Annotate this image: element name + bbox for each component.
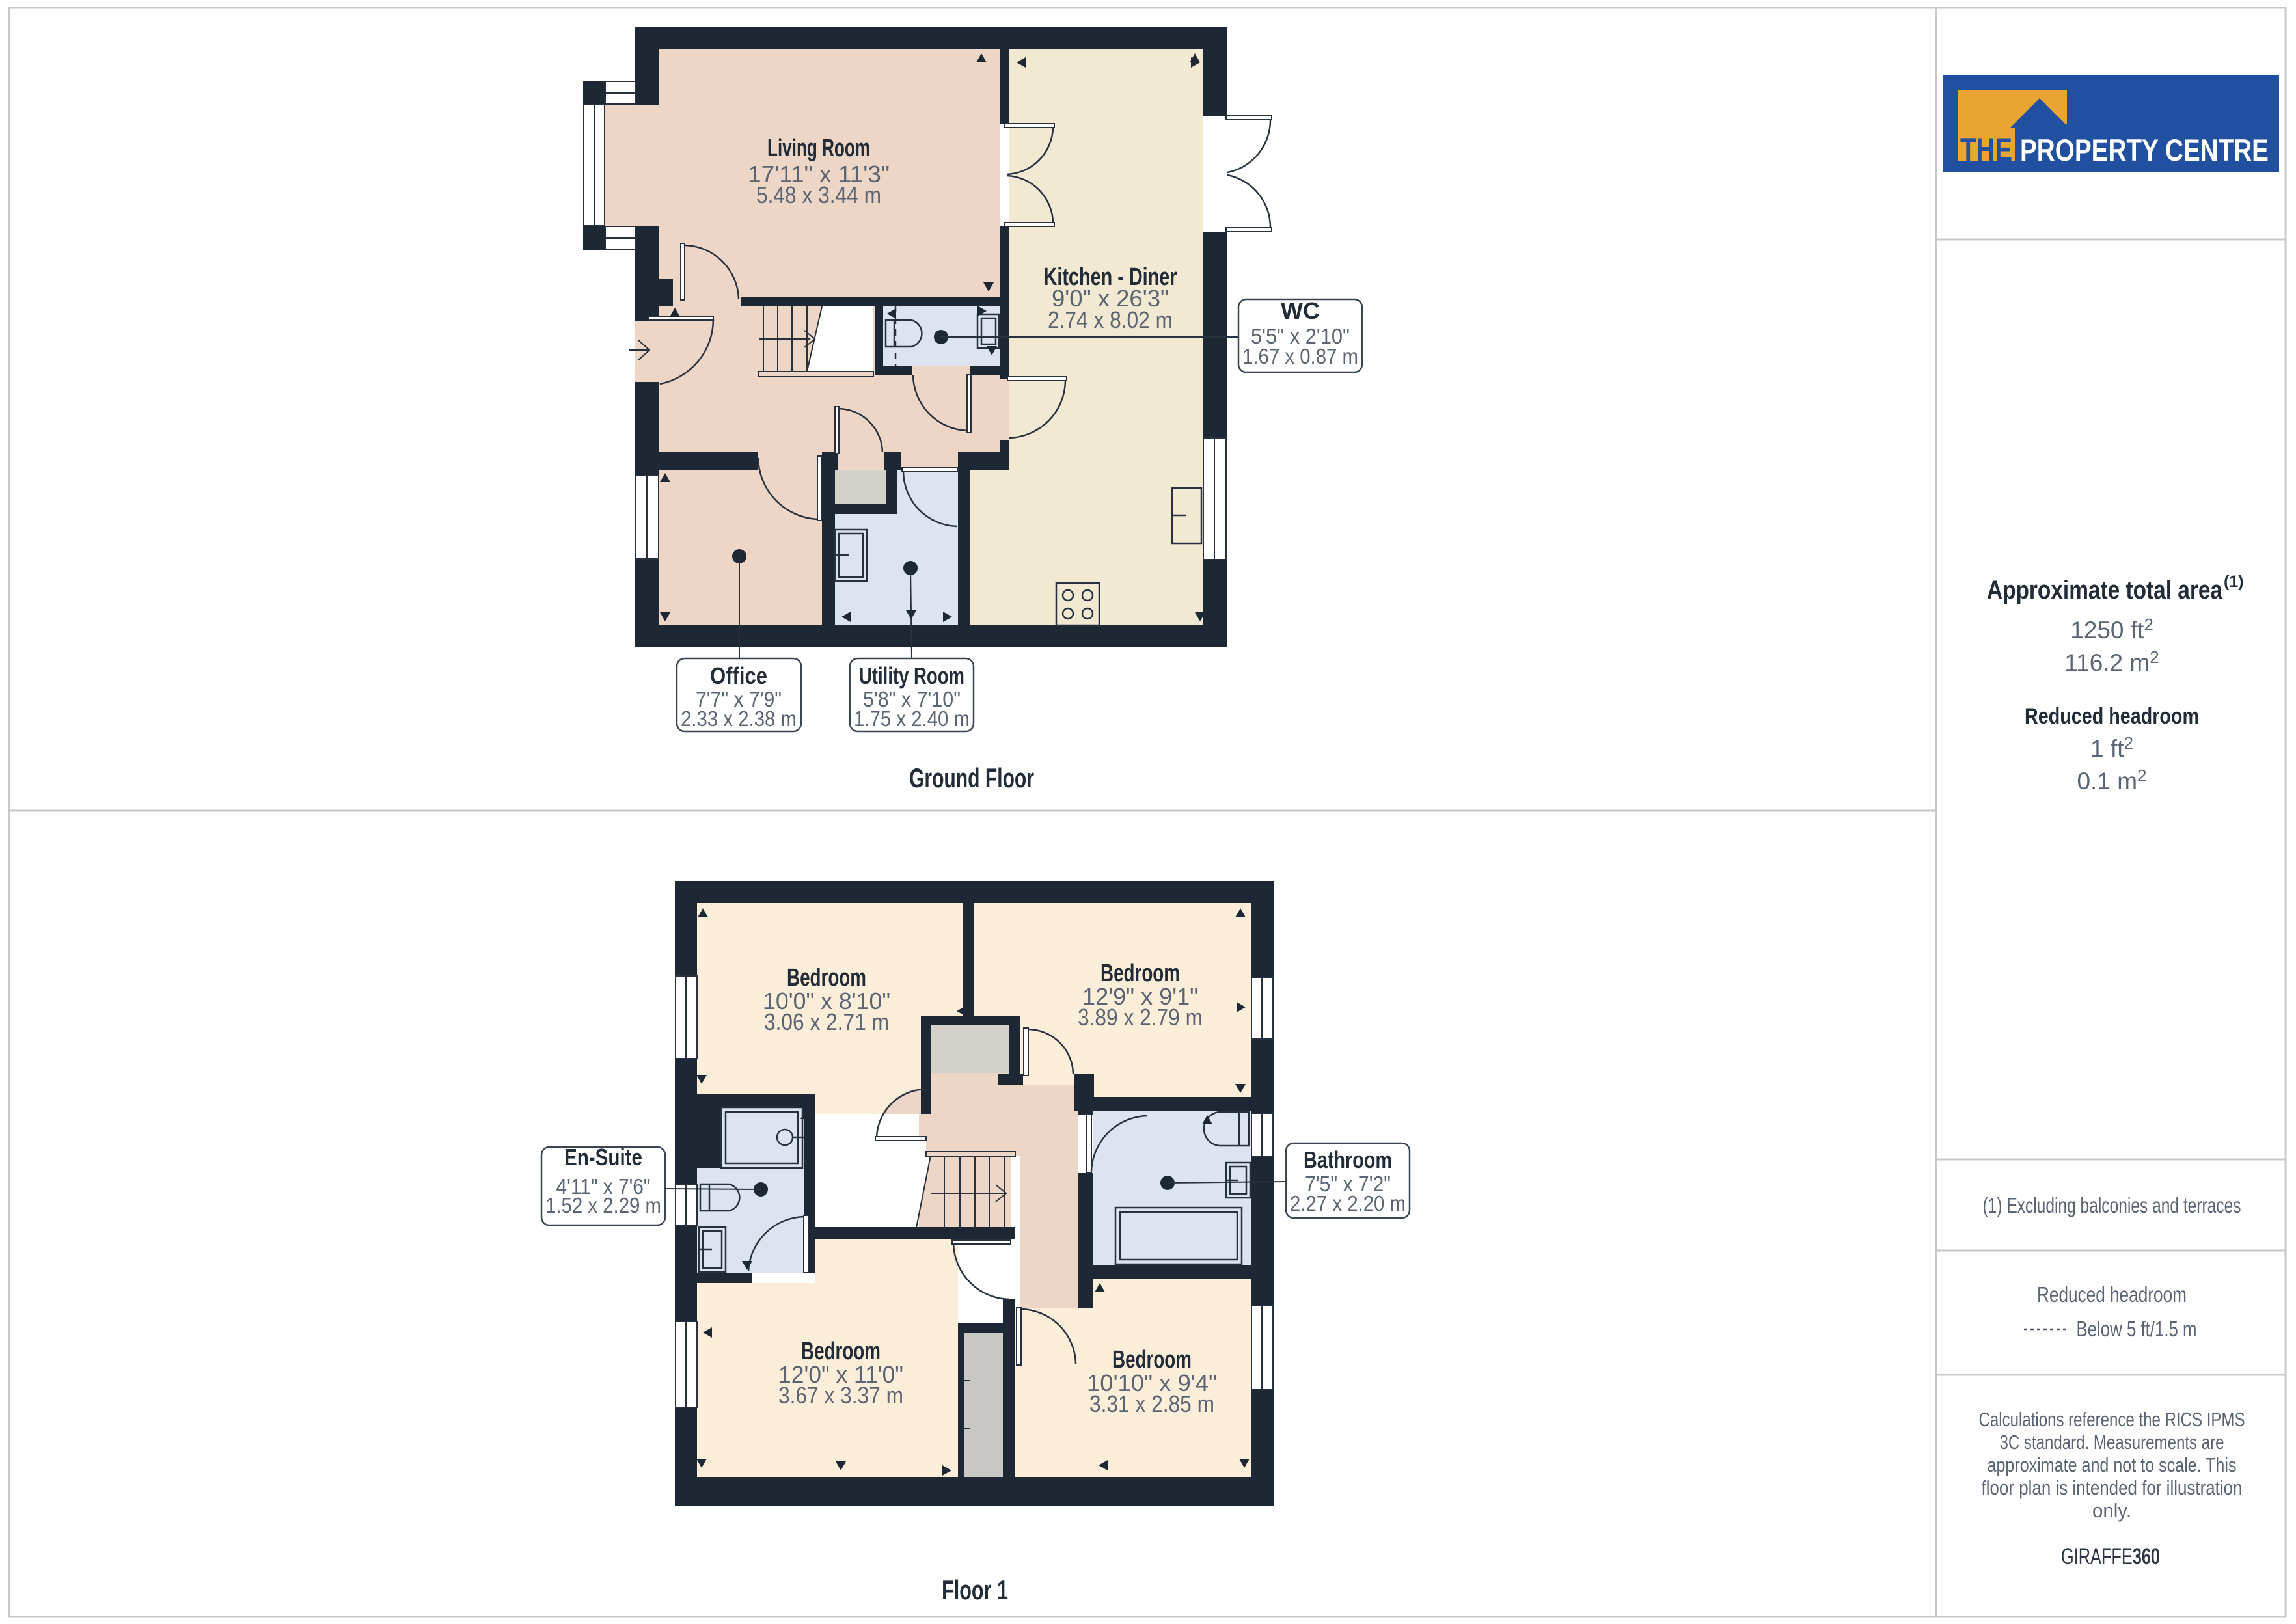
svg-text:(1) Excluding balconies and te: (1) Excluding balconies and terraces [1983,1193,2241,1217]
svg-text:3.67 x 3.37 m: 3.67 x 3.37 m [778,1382,903,1409]
svg-text:116.2 m2: 116.2 m2 [2064,647,2159,676]
svg-text:only.: only. [2092,1499,2131,1522]
svg-text:1.67 x 0.87 m: 1.67 x 0.87 m [1242,344,1358,368]
svg-text:Utility Room: Utility Room [859,662,964,689]
svg-text:1.52 x 2.29 m: 1.52 x 2.29 m [545,1193,661,1217]
svg-text:Approximate total area: Approximate total area [1987,576,2223,604]
svg-text:THE: THE [1960,131,2012,168]
svg-text:3.31 x 2.85 m: 3.31 x 2.85 m [1089,1390,1214,1417]
svg-text:Calculations reference the RIC: Calculations reference the RICS IPMS [1979,1408,2245,1431]
svg-text:WC: WC [1281,297,1320,324]
svg-text:Bathroom: Bathroom [1304,1146,1392,1173]
svg-text:1 ft2: 1 ft2 [2090,733,2133,762]
svg-text:Floor 1: Floor 1 [942,1575,1008,1605]
svg-text:2.27 x 2.20 m: 2.27 x 2.20 m [1290,1191,1406,1215]
svg-text:GIRAFFE360: GIRAFFE360 [2061,1544,2160,1569]
svg-text:En-Suite: En-Suite [564,1144,642,1171]
svg-text:approximate and not to scale.: approximate and not to scale. This [1988,1454,2237,1476]
svg-text:Reduced headroom: Reduced headroom [2037,1282,2187,1306]
svg-text:3.89 x 2.79 m: 3.89 x 2.79 m [1078,1004,1203,1031]
svg-text:PROPERTY CENTRE: PROPERTY CENTRE [2020,133,2269,167]
svg-text:1250 ft2: 1250 ft2 [2070,615,2153,643]
svg-text:0.1 m2: 0.1 m2 [2077,766,2146,794]
svg-text:Reduced headroom: Reduced headroom [2025,704,2199,729]
svg-text:3.06 x 2.71 m: 3.06 x 2.71 m [764,1008,889,1035]
svg-text:Ground Floor: Ground Floor [909,763,1034,793]
svg-text:3C standard. Measurements are: 3C standard. Measurements are [2000,1431,2224,1454]
svg-text:Office: Office [710,662,767,689]
svg-text:floor plan is intended for ill: floor plan is intended for illustration [1982,1476,2243,1499]
svg-text:2.74 x 8.02 m: 2.74 x 8.02 m [1048,306,1173,333]
svg-text:Living Room: Living Room [767,135,870,162]
svg-text:2.33 x 2.38 m: 2.33 x 2.38 m [681,707,797,731]
svg-text:1.75 x 2.40 m: 1.75 x 2.40 m [854,707,970,731]
svg-text:5.48 x 3.44 m: 5.48 x 3.44 m [756,182,881,208]
svg-text:Below 5 ft/1.5 m: Below 5 ft/1.5 m [2077,1317,2197,1341]
svg-text:(1): (1) [2224,573,2244,591]
